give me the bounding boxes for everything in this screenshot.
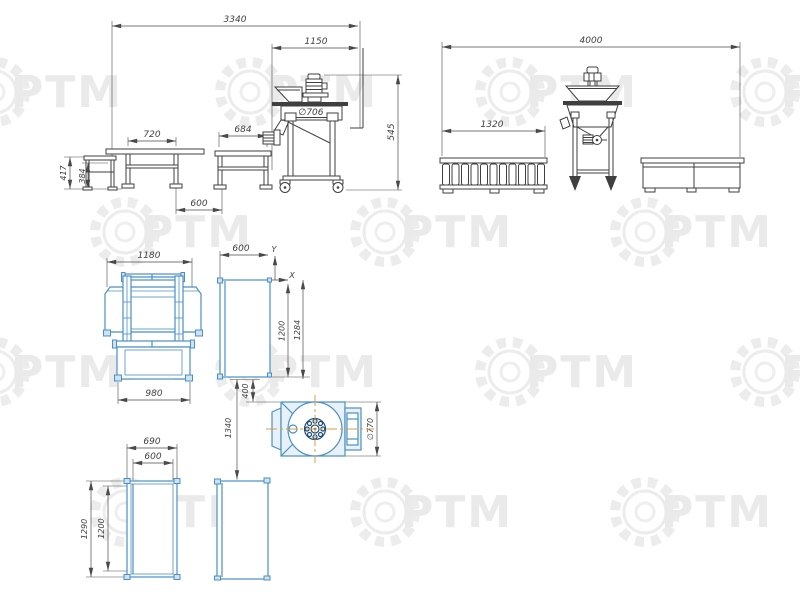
watermark-text: РТМ — [11, 347, 123, 398]
pointed-foot — [605, 176, 617, 191]
dim-plan-table2-length-overall: 1284 — [293, 320, 302, 340]
tank-lid — [272, 102, 348, 106]
front-low-table — [641, 158, 744, 192]
plan-lower-table-left — [124, 479, 180, 580]
dim-side-platform-height: 417 — [59, 164, 68, 180]
watermark-text: РТМ — [11, 67, 123, 118]
dim-lower-overall-width: 690 — [143, 437, 160, 447]
watermark-text: РТМ — [266, 347, 378, 398]
watermark-text: РТМ — [401, 487, 513, 538]
watermark-text: РТМ — [401, 207, 513, 258]
technical-drawing-page: РТМ РТМ РТМ РТМ РТМ РТМ РТМ РТМ РТМ РТМ … — [0, 0, 800, 600]
pointed-foot — [569, 176, 581, 191]
watermark-gear-logo: РТМ — [355, 202, 513, 262]
dim-plan-table1-width: 1180 — [138, 251, 161, 261]
dim-lower-inner-width: 600 — [144, 452, 161, 462]
dim-plan-table2-width: 600 — [232, 244, 249, 254]
plan-table2 — [218, 278, 272, 379]
dim-side-table1-span: 720 — [143, 130, 160, 140]
watermark-gear-logo: РТМ — [615, 202, 773, 262]
watermark-gear-logo: РТМ — [0, 62, 123, 122]
watermark-text: РТМ — [661, 207, 773, 258]
dim-side-machine-height: 545 — [387, 123, 397, 140]
dim-front-overall: 4000 — [580, 36, 603, 46]
view-plan-bottom: 690 600 1290 1200 — [80, 437, 270, 580]
watermark-gear-logo: РТМ — [615, 482, 773, 542]
motor-cap — [587, 67, 598, 73]
dim-side-gap: 600 — [190, 199, 207, 209]
dim-plan-gap: 400 — [241, 383, 250, 398]
machine-line-drawing: РТМ РТМ РТМ РТМ РТМ РТМ РТМ РТМ РТМ РТМ … — [0, 0, 800, 600]
plan-table1 — [104, 273, 203, 382]
watermark-text: РТМ — [781, 67, 800, 118]
watermark-gear-logo: РТМ — [480, 342, 638, 402]
dim-plan-table1-base: 980 — [145, 389, 162, 399]
watermark-gear-logo: РТМ — [0, 342, 123, 402]
dim-lower-overall-length: 1290 — [80, 519, 89, 539]
watermark-text: РТМ — [661, 487, 773, 538]
dim-side-table2-span: 684 — [234, 125, 251, 135]
watermark-text: РТМ — [526, 347, 638, 398]
tank-lid — [563, 101, 622, 105]
dim-plan-table2-length: 1200 — [278, 321, 287, 341]
side-table-1 — [106, 149, 204, 188]
watermark-text: РТМ — [781, 347, 800, 398]
watermark-gear-logo: РТМ — [355, 482, 513, 542]
watermark-gear-logo: РТМ — [735, 62, 800, 122]
dim-lower-inner-length: 1200 — [97, 518, 106, 538]
watermark-gear-logo: РТМ — [735, 342, 800, 402]
dim-plan-offset: 1340 — [224, 418, 233, 438]
watermark-gear-logo: РТМ — [95, 202, 253, 262]
dim-front-rack-width: 1320 — [481, 120, 504, 130]
motor-body — [584, 73, 601, 81]
dim-side-overall: 3340 — [224, 15, 247, 25]
dim-tank-diameter: ∅706 — [298, 108, 323, 118]
motor-cap — [308, 74, 320, 79]
dim-side-machine-section: 1150 — [305, 37, 328, 47]
front-mixer-machine — [560, 67, 622, 191]
axis-x-label: X — [288, 271, 295, 280]
axis-y-label: Y — [272, 245, 278, 254]
plan-mixer-machine — [266, 395, 374, 463]
plan-lower-table-right — [215, 478, 271, 580]
side-table-2 — [214, 151, 272, 189]
front-slat-rack — [440, 158, 547, 193]
